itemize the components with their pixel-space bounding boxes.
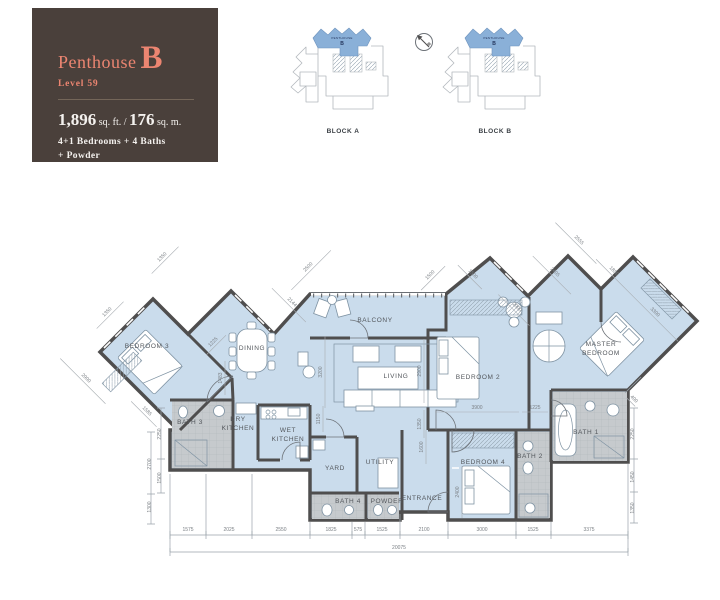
dimension-value: 1483 (218, 372, 224, 383)
dimension-value: 3375 (583, 527, 594, 533)
dim-line (555, 223, 596, 264)
room-name: BEDROOM 4 (461, 459, 505, 466)
dimension-value: 575 (354, 527, 363, 533)
room-name: UTILITY (366, 459, 394, 466)
room-name: POWDER (371, 498, 404, 505)
unit-tag-letter: B (340, 41, 344, 47)
room-name: KITCHEN (272, 436, 305, 443)
dimension-value: 2550 (275, 527, 286, 533)
block-a-label: BLOCK A (327, 128, 360, 135)
unit-tag-name: PENTHOUSE (331, 36, 352, 40)
dimension-value: 1525 (527, 527, 538, 533)
balcony-railing (311, 293, 445, 296)
dimension-value: 1575 (182, 527, 193, 533)
unit-tag-name: PENTHOUSE (483, 36, 504, 40)
room-name: BATH 1 (573, 429, 599, 436)
dimension-value: 3900 (471, 405, 482, 411)
room-name: LIVING (384, 373, 409, 380)
dimension-value: 1585 (141, 405, 153, 417)
site-plan-block-a: PENTHOUSE B BLOCK A (291, 28, 388, 135)
room-name: BATH 2 (517, 453, 543, 460)
room-name: BATH 4 (335, 498, 361, 505)
block-b-label: BLOCK B (478, 128, 511, 135)
dimension-value: 1525 (376, 527, 387, 533)
dimension-value: 1150 (316, 413, 322, 424)
room-name: WET (280, 427, 296, 434)
room-name: BALCONY (357, 317, 392, 324)
room-name: BATH 3 (177, 419, 203, 426)
tower-outline (443, 46, 540, 109)
room-name: YARD (325, 465, 345, 472)
dimension-value: 3200 (318, 366, 324, 377)
dressing-area (533, 312, 565, 362)
room-name: BEDROOM 3 (125, 343, 169, 350)
room-name: DINING (239, 345, 265, 352)
dimension-value: 2900 (417, 365, 423, 376)
compass-icon (416, 34, 433, 51)
penthouse-b-highlight: PENTHOUSE B (313, 28, 371, 56)
dimension-value: 1825 (325, 527, 336, 533)
dimension-value: 2025 (223, 527, 234, 533)
dimension-value: 2400 (455, 486, 461, 497)
dimension-value: 3000 (476, 527, 487, 533)
dimension-value: 20075 (392, 545, 406, 551)
dim-line (152, 247, 179, 274)
dimension-value: 2144 (286, 296, 298, 308)
room-name: KITCHEN (222, 425, 255, 432)
site-plan-block-b: PENTHOUSE B BLOCK B (443, 28, 540, 135)
dimension-value: 400 (629, 394, 639, 404)
dimension-value: 1350 (630, 502, 636, 513)
room-name: MASTER (586, 341, 617, 348)
dimension-value: 1600 (419, 441, 425, 452)
penthouse-b-highlight: PENTHOUSE B (465, 28, 523, 56)
dimension-value: 2250 (157, 428, 163, 439)
dimension-value: 2250 (630, 428, 636, 439)
dimension-value: 1350 (156, 251, 168, 263)
tower-outline (291, 46, 388, 109)
room-name: DRY (230, 416, 245, 423)
dimension-value: 1300 (147, 501, 153, 512)
dimension-value: 2555 (573, 234, 585, 246)
dim-line (291, 250, 331, 290)
floor-plan-svg: PENTHOUSE B BLOCK A PENTHOUSE B BLOCK B (0, 0, 720, 600)
unit-tag-letter: B (492, 41, 496, 47)
dimension-value: 1350 (101, 306, 113, 318)
dim-line (60, 358, 105, 403)
dimension-value: 1500 (424, 269, 436, 281)
dimension-value: 1225 (529, 405, 540, 411)
floor-plan: 1350135025002144150015002000240525551850… (60, 223, 697, 556)
dim-line (97, 302, 124, 329)
dimension-value: 2500 (302, 261, 314, 273)
room-name: BEDROOM 2 (456, 374, 500, 381)
dimension-value: 2700 (147, 458, 153, 469)
dimension-value: 2100 (418, 527, 429, 533)
dimension-value: 1350 (417, 418, 423, 429)
dimension-value: 1500 (157, 472, 163, 483)
dimension-value: 2900 (80, 372, 92, 384)
room-name: BEDROOM (582, 350, 620, 357)
dimension-value: 1450 (630, 471, 636, 482)
room-name: ENTRANCE (402, 495, 443, 502)
